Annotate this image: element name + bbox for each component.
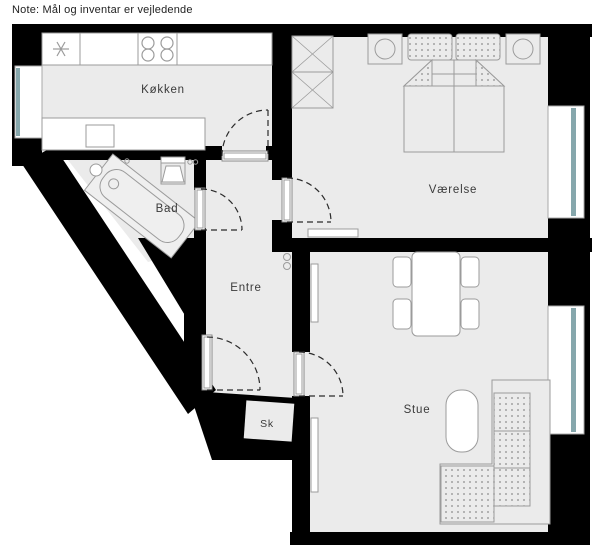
floor-plan-page: Note: Mål og inventar er vejledende (0, 0, 600, 550)
pillow-icon (456, 34, 500, 60)
chair-icon (461, 299, 479, 329)
coffee-table-icon (446, 390, 478, 452)
wall-bath-right-upper (194, 158, 206, 190)
double-bed-icon (404, 60, 504, 152)
bedroom-label: Værelse (429, 184, 477, 196)
window-kitchen (15, 66, 42, 138)
kitchen-label: Køkken (141, 84, 185, 96)
window-glass (571, 108, 576, 216)
radiator-icon (311, 418, 318, 492)
wardrobe-icon (292, 36, 333, 108)
kitchen-counter-bottom (42, 118, 205, 150)
pillow-icon (408, 34, 452, 60)
floor-plan-drawing: Køkken Bad Entre Sk Værelse Stue (0, 0, 600, 550)
window-glass (571, 308, 576, 432)
living-room-label: Stue (404, 404, 431, 416)
closet-label: Sk (260, 418, 274, 430)
window-glass (16, 68, 20, 136)
stove-cabinet (138, 33, 177, 65)
hallway-label: Entre (230, 282, 262, 294)
nightstand-icon (506, 34, 540, 64)
nightstand-icon (368, 34, 402, 64)
chair-icon (461, 257, 479, 287)
toilet-icon (161, 157, 185, 184)
wall-bottom (290, 532, 590, 545)
wall-right (548, 24, 590, 545)
wall-bedroom-living (272, 238, 592, 252)
wall-bath-right-lower (194, 228, 206, 254)
washbasin-icon (90, 164, 102, 176)
chair-icon (393, 257, 411, 287)
wall-bedroom-left-upper (272, 36, 292, 180)
bathroom-label: Bad (156, 203, 179, 215)
wall-living-left-upper (292, 252, 310, 352)
radiator-icon (311, 264, 318, 322)
window-bedroom (548, 106, 584, 218)
window-living (548, 306, 584, 434)
chair-icon (393, 299, 411, 329)
kitchen-appliance (86, 125, 114, 147)
dining-table-icon (412, 252, 460, 336)
hallway-floor (200, 150, 294, 400)
radiator-icon (308, 229, 358, 237)
